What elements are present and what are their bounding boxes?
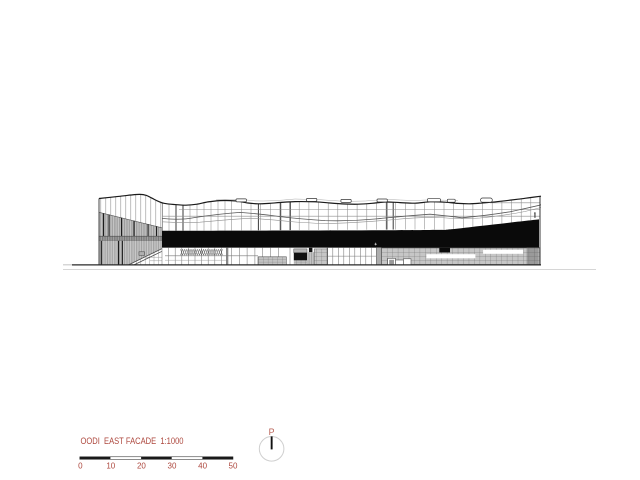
svg-text:P: P bbox=[269, 427, 275, 437]
svg-text:40: 40 bbox=[198, 461, 207, 470]
svg-text:0: 0 bbox=[78, 461, 83, 470]
svg-text:20: 20 bbox=[137, 461, 146, 470]
svg-text:50: 50 bbox=[229, 461, 238, 470]
svg-text:10: 10 bbox=[106, 461, 115, 470]
svg-text:OODI EAST FACADE 1:1000: OODI EAST FACADE 1:1000 bbox=[81, 436, 184, 446]
svg-text:30: 30 bbox=[168, 461, 177, 470]
